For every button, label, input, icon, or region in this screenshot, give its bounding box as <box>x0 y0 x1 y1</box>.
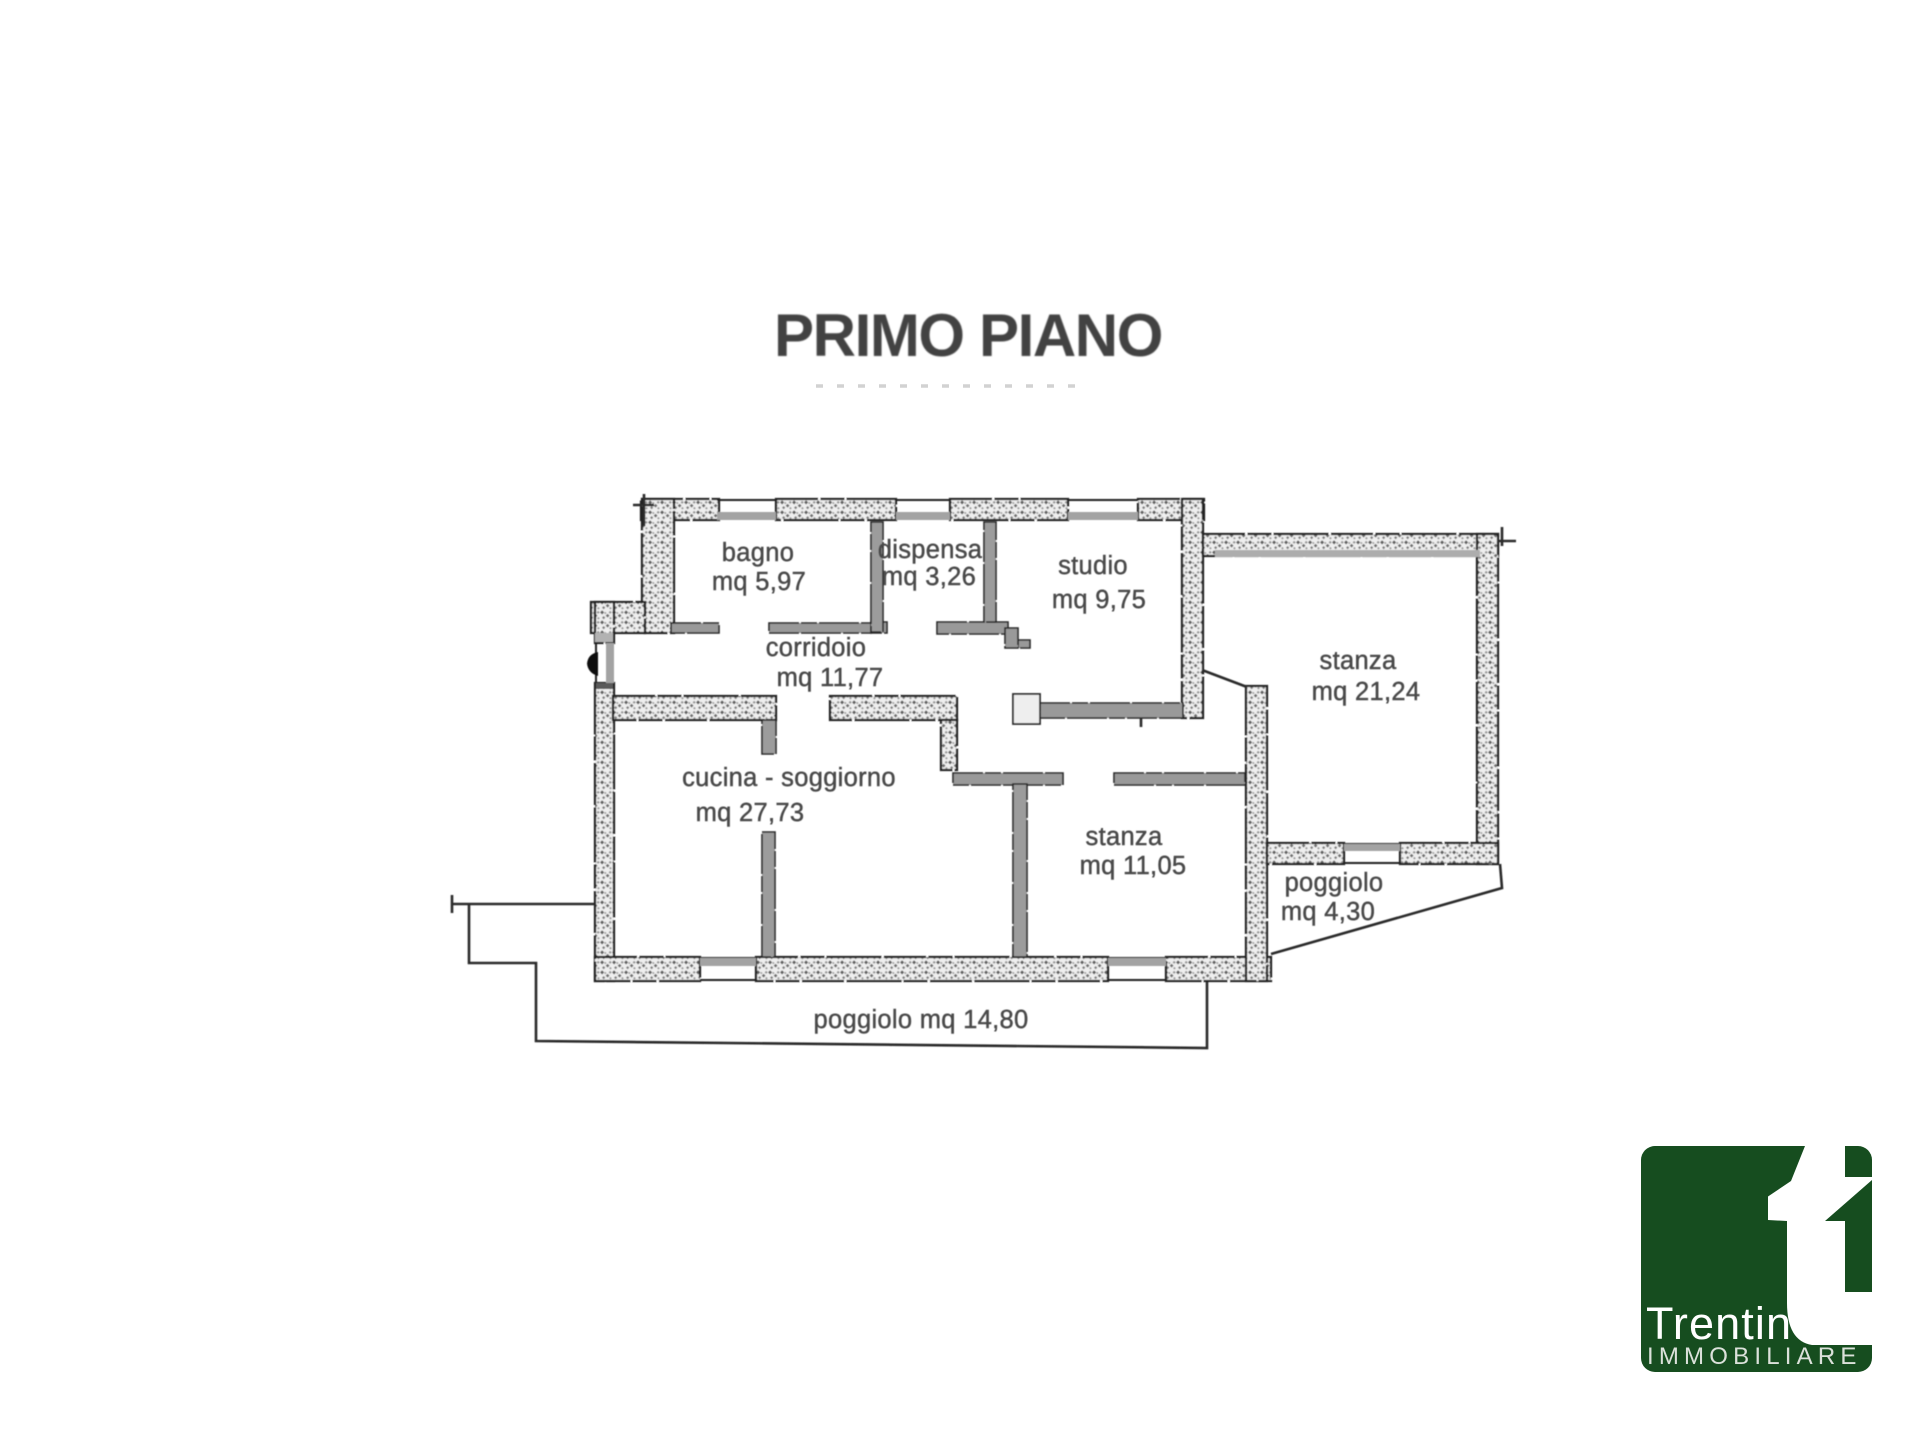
svg-text:studio: studio <box>1058 552 1128 580</box>
svg-text:cucina - soggiorno: cucina - soggiorno <box>682 764 896 792</box>
svg-text:mq 27,73: mq 27,73 <box>696 799 805 827</box>
svg-text:corridoio: corridoio <box>766 634 867 662</box>
svg-text:IMMOBILIARE: IMMOBILIARE <box>1647 1343 1862 1370</box>
svg-text:mq 5,97: mq 5,97 <box>712 568 806 596</box>
svg-text:stanza: stanza <box>1320 647 1397 675</box>
svg-text:poggiolo mq 14,80: poggiolo mq 14,80 <box>814 1006 1029 1034</box>
svg-text:mq 21,24: mq 21,24 <box>1312 678 1421 706</box>
svg-text:dispensa: dispensa <box>878 536 983 564</box>
svg-text:mq 3,26: mq 3,26 <box>882 563 976 591</box>
svg-text:stanza: stanza <box>1086 823 1163 851</box>
svg-text:mq 11,77: mq 11,77 <box>777 664 884 692</box>
svg-text:poggiolo: poggiolo <box>1285 869 1384 897</box>
svg-text:mq 4,30: mq 4,30 <box>1281 898 1375 926</box>
svg-text:PRIMO PIANO: PRIMO PIANO <box>774 302 1162 369</box>
svg-text:mq 9,75: mq 9,75 <box>1052 586 1146 614</box>
svg-text:mq 11,05: mq 11,05 <box>1080 852 1187 880</box>
svg-text:bagno: bagno <box>722 539 794 567</box>
svg-text:Trentin: Trentin <box>1646 1298 1792 1349</box>
